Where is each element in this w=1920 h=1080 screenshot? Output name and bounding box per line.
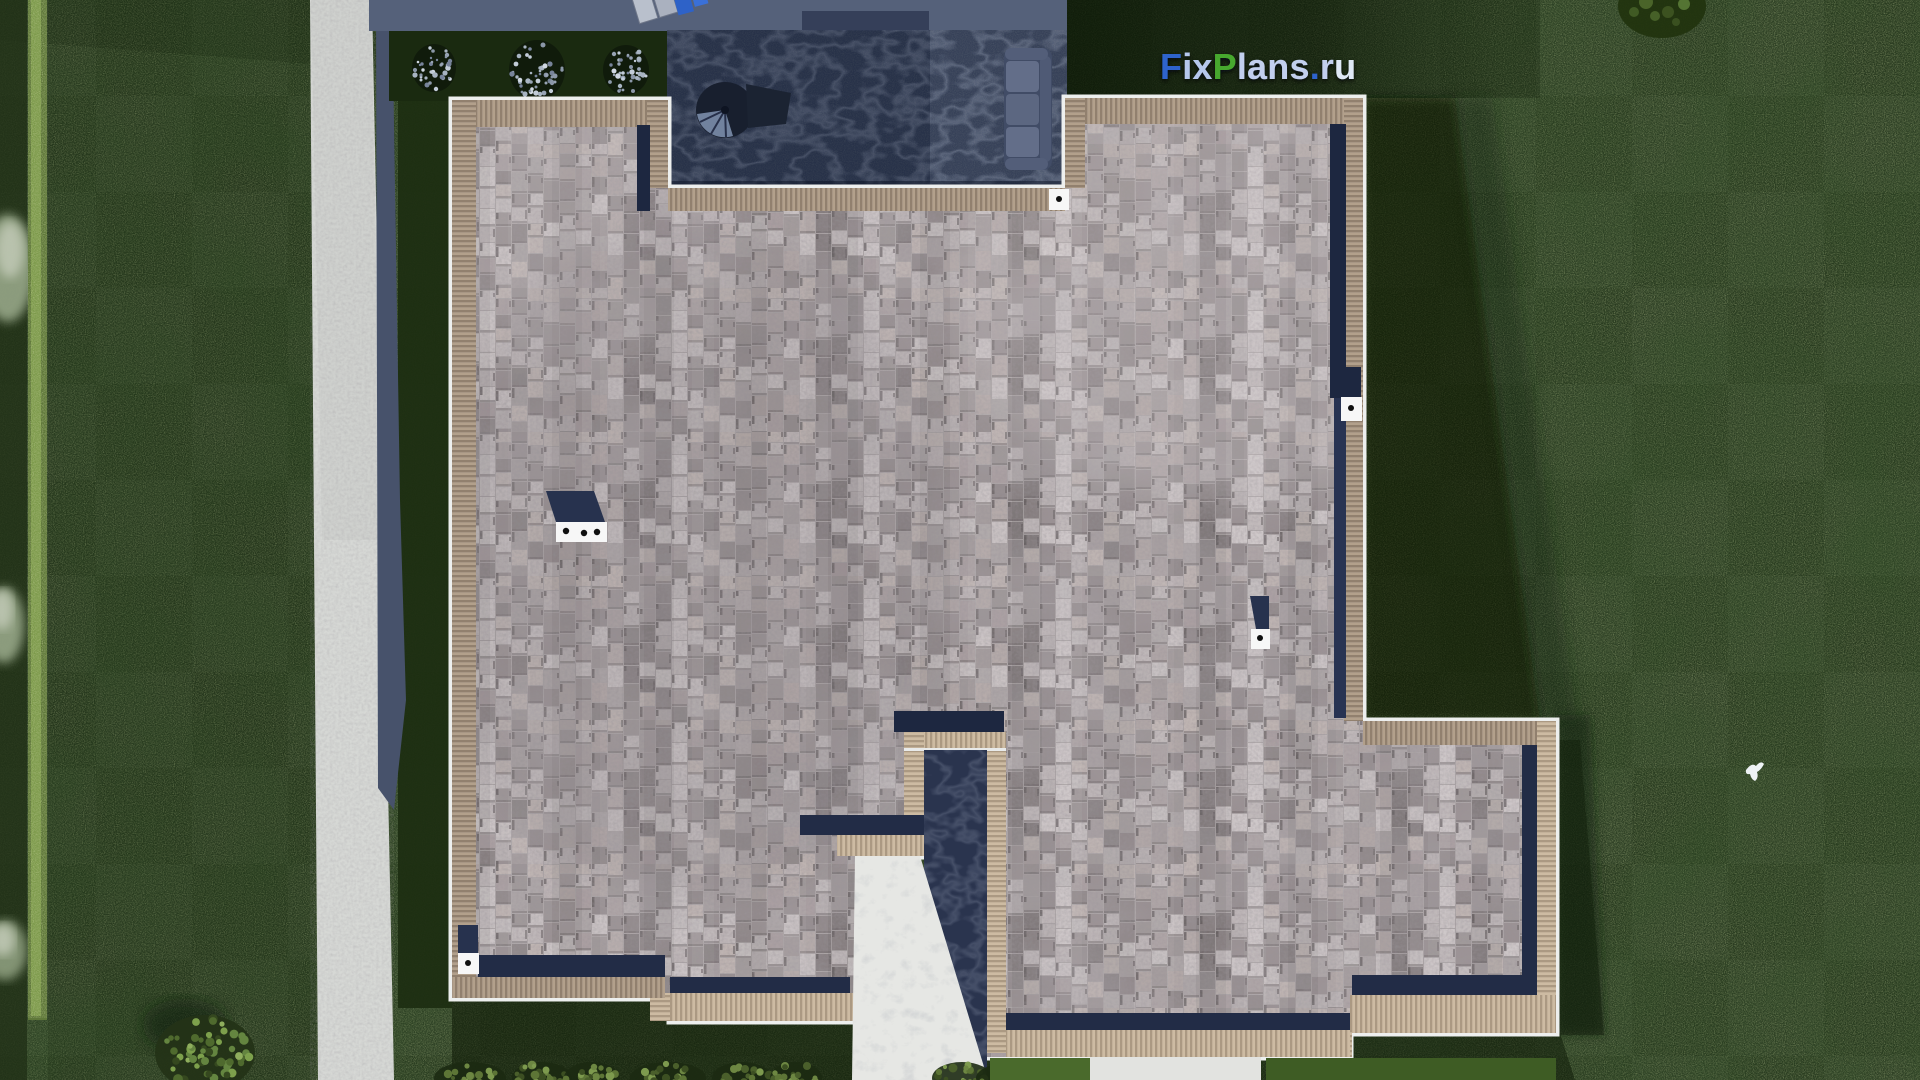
svg-text:FixPlans.ru: FixPlans.ru [1160,46,1356,87]
